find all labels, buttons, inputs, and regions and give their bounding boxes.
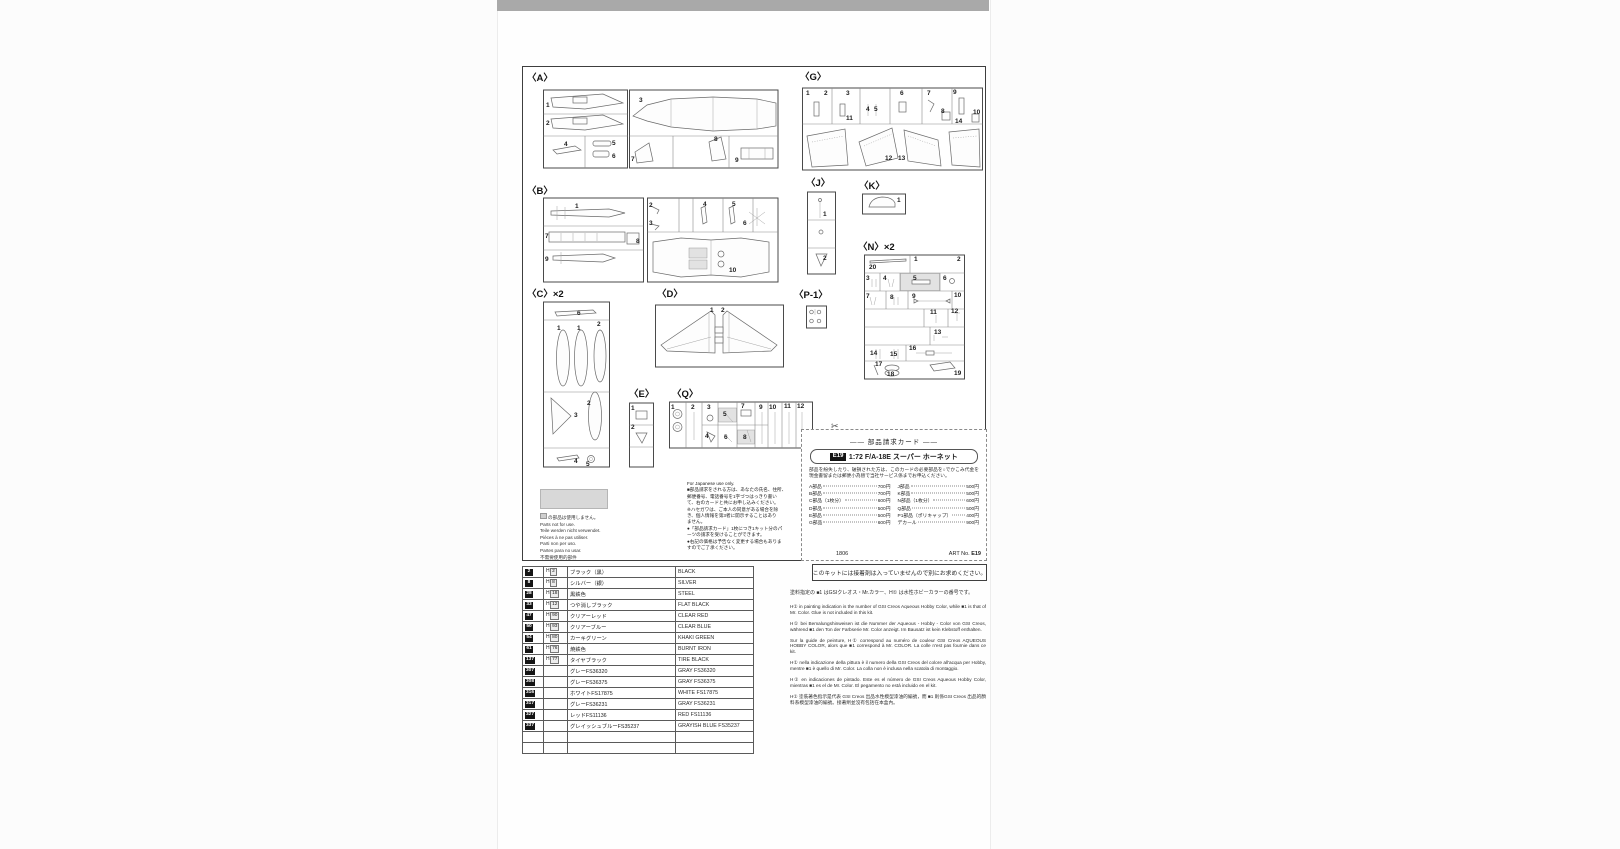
part-number: 19: [954, 370, 962, 377]
price-row: A部品700円 J部品500円: [809, 483, 979, 490]
sprue-k-diagram: 1: [862, 192, 907, 216]
part-number: 2: [587, 400, 591, 407]
mr-color-code: 316: [525, 690, 535, 697]
part-number: 4: [703, 201, 707, 208]
color-name-en: CLEAR RED: [676, 611, 754, 622]
sprue-n-diagram: 20 1 2 3 4 5 6 7 8 9 10 11 12 13 14 15 1…: [864, 253, 966, 381]
part-number: 2: [649, 202, 653, 209]
aqueous-color-code: H2: [546, 568, 557, 574]
part-number: 2: [721, 307, 725, 314]
mr-color-code: 54: [525, 635, 533, 642]
part-number: 5: [612, 140, 616, 147]
part-number: 8: [941, 108, 945, 115]
part-number: 13: [934, 329, 942, 336]
part-number: 18: [887, 371, 895, 378]
part-number: 9: [735, 157, 739, 164]
part-number: 3: [574, 412, 578, 419]
sprue-label-k: 〈K〉: [859, 178, 885, 192]
color-name-jp: グレーFS36231: [568, 699, 676, 710]
paint-note-paragraph: H① in painting indication is the number …: [790, 604, 986, 616]
not-for-use-line: Parts not for use.: [540, 522, 622, 529]
part-number: 3: [649, 220, 653, 227]
part-number: 12: [797, 403, 805, 410]
price-row: G部品600円 デカール900円: [809, 519, 979, 526]
mr-color-code: 307: [525, 668, 535, 675]
paint-table-row: 137 H77 タイヤブラック TIRE BLACK: [523, 655, 754, 666]
color-name-jp: レッドFS11136: [568, 710, 676, 721]
part-number: 1: [710, 307, 714, 314]
part-number: 9: [912, 293, 916, 300]
aqueous-color-code: H12: [546, 601, 559, 607]
part-number: 17: [875, 361, 883, 368]
part-number: 3: [639, 97, 643, 104]
part-number: 7: [741, 403, 745, 410]
print-code: 1806: [836, 551, 848, 557]
part-number: 2: [546, 120, 550, 127]
part-number: 3: [846, 90, 850, 97]
part-number: 5: [732, 201, 736, 208]
paint-table-row: 54 H80 カーキグリーン KHAKI GREEN: [523, 633, 754, 644]
part-number: 12: [885, 155, 893, 162]
color-name-en: FLAT BLACK: [676, 600, 754, 611]
sprue-label-a: 〈A〉: [527, 70, 553, 84]
color-name-jp: ブラック（黒）: [568, 567, 676, 578]
part-number: 15: [890, 351, 898, 358]
aqueous-color-code: H93: [546, 623, 559, 629]
paint-table-row: 2 H2 ブラック（黒） BLACK: [523, 567, 754, 578]
part-number: 6: [900, 90, 904, 97]
part-number: 6: [577, 310, 581, 317]
mr-color-code: 308: [525, 679, 535, 686]
color-name-jp: カーキグリーン: [568, 633, 676, 644]
part-number: 2: [957, 256, 961, 263]
part-number: 4: [564, 141, 568, 148]
part-number: 2: [631, 424, 635, 431]
part-number: 6: [612, 153, 616, 160]
paint-table-row: 8 H8 シルバー（銀） SILVER: [523, 578, 754, 589]
kit-name: 1:72 F/A-18E スーパー ホーネット: [849, 452, 958, 462]
art-number: ART No. E19: [949, 551, 981, 557]
sprue-label-c: 〈C〉×2: [527, 286, 564, 300]
part-number: 14: [955, 118, 963, 125]
part-number: 5: [913, 275, 917, 282]
part-number: 1: [577, 325, 581, 332]
color-name-en: WHITE FS17875: [676, 688, 754, 699]
japanese-only-note: For Japanese use only.■部品請求をされる方は、あなたの氏名…: [687, 481, 794, 551]
aqueous-color-code: H18: [546, 590, 559, 596]
sprue-j-diagram: 1 2: [807, 190, 837, 275]
part-number: 4: [705, 433, 709, 440]
color-name-jp: シルバー（銀）: [568, 578, 676, 589]
scissors-icon: ✂: [831, 421, 839, 432]
part-number: 1: [897, 197, 901, 204]
part-number: 5: [723, 411, 727, 418]
parts-not-for-use: の部品は使用しません。 Parts not for use.Teile werd…: [540, 489, 622, 561]
note-line: すのでご了承ください。: [687, 545, 794, 551]
color-name-jp: [568, 732, 676, 743]
mr-color-code: 2: [525, 569, 533, 576]
part-number: 6: [724, 434, 728, 441]
part-number: 5: [586, 461, 590, 468]
part-number: 1: [806, 90, 810, 97]
paint-table-row: 337 グレイッシュブルーFS35237 GRAYISH BLUE FS3523…: [523, 721, 754, 732]
part-number: 7: [631, 156, 635, 163]
part-number: 8: [743, 434, 747, 441]
mr-color-code: 50: [525, 624, 533, 631]
part-number: 10: [973, 109, 981, 116]
not-for-use-line-jp: の部品は使用しません。: [540, 513, 622, 522]
color-name-en: GRAY FS36231: [676, 699, 754, 710]
kit-name-box: E19 1:72 F/A-18E スーパー ホーネット: [810, 449, 978, 464]
part-number: 3: [707, 404, 711, 411]
color-name-en: GRAYISH BLUE FS35237: [676, 721, 754, 732]
part-number: 1: [914, 256, 918, 263]
paint-table-row: 50 H93 クリアーブルー CLEAR BLUE: [523, 622, 754, 633]
paint-notes: 塗料指定の ■1 はGSIクレオス・Mr.カラー、H① は水性ホビーカラーの番号…: [790, 591, 986, 711]
aqueous-color-code: H90: [546, 612, 559, 618]
part-number: 14: [870, 350, 878, 357]
sprue-c-diagram: 6 1 1 2 2 3 4 5: [543, 300, 613, 470]
color-name-jp: グレーFS36320: [568, 666, 676, 677]
color-name-jp: グレイッシュブルーFS35237: [568, 721, 676, 732]
color-name-en: [676, 732, 754, 743]
mr-color-code: 317: [525, 701, 535, 708]
sprue-label-e: 〈E〉: [629, 386, 654, 400]
part-number: 2: [597, 321, 601, 328]
part-number: 11: [930, 309, 937, 316]
paint-color-table: 2 H2 ブラック（黒） BLACK 8 H8 シルバー（銀） SILVER 2…: [522, 566, 754, 754]
part-number: 7: [866, 293, 870, 300]
color-name-jp: ホワイトFS17875: [568, 688, 676, 699]
color-name-jp: 黒鉄色: [568, 589, 676, 600]
part-number: 6: [743, 220, 747, 227]
paint-note-paragraph: H① 塗裝著色指示是代表 GSI Creos 出品水性模型漆油的編號，而 ■1 …: [790, 694, 986, 706]
paint-note-paragraph: H① bei Bemalungshinweisen ist die Nummer…: [790, 621, 986, 633]
not-for-use-line: Parti non per uso.: [540, 541, 622, 548]
part-number: 7: [545, 233, 549, 240]
paint-table-body: 2 H2 ブラック（黒） BLACK 8 H8 シルバー（銀） SILVER 2…: [523, 567, 754, 754]
note-line: ■部品請求をされる方は、あなたの氏名、住所、: [687, 487, 794, 493]
color-name-jp: クリアーブルー: [568, 622, 676, 633]
color-name-en: GRAY FS36320: [676, 666, 754, 677]
part-number: 4: [574, 458, 578, 465]
color-name-jp: つや消しブラック: [568, 600, 676, 611]
part-number: 13: [898, 155, 906, 162]
mr-color-code: 33: [525, 602, 533, 609]
sprue-g-diagram: 1 2 3 4 5 6 7 8 9 10 11 12 13 14: [802, 86, 984, 172]
part-number: 11: [784, 403, 791, 410]
part-number: 10: [769, 404, 777, 411]
price-row: E部品500円 P1部品（ポリキャップ）400円: [809, 512, 979, 519]
sprue-label-j: 〈J〉: [806, 175, 830, 189]
aqueous-color-code: H77: [546, 656, 559, 662]
sprue-p1-diagram: [806, 304, 830, 330]
paint-note-paragraph: Sur la guide de peinture, H① correspond …: [790, 638, 986, 656]
parts-request-card: ―― 部品請求カード ―― E19 1:72 F/A-18E スーパー ホーネッ…: [801, 429, 987, 561]
part-number: 9: [545, 256, 549, 263]
color-name-en: BURNT IRON: [676, 644, 754, 655]
color-name-jp: クリアーレッド: [568, 611, 676, 622]
mr-color-code: 137: [525, 657, 535, 664]
sprue-d-diagram: 1 2: [655, 303, 785, 369]
price-row: C部品（1枚分）600円 N部品（1枚分）600円: [809, 497, 979, 504]
not-for-use-line: 不需要使用的部件: [540, 555, 622, 562]
sprue-label-q: 〈Q〉: [672, 386, 698, 400]
paint-table-row: [523, 743, 754, 754]
parts-card-instructions: 部品を紛失したり、破損された方は、このカードの必要部品を○でかこみ代金を現金書留…: [809, 467, 979, 479]
part-number: 2: [823, 255, 827, 262]
color-name-en: STEEL: [676, 589, 754, 600]
sprue-b-diagram: 1 2 3 4 5 6 7 8 9 10: [543, 196, 779, 284]
part-number: 16: [909, 345, 917, 352]
sprue-label-n: 〈N〉×2: [858, 239, 895, 253]
part-number: 10: [729, 267, 737, 274]
color-name-en: GRAY FS36375: [676, 677, 754, 688]
not-for-use-line: Pièces à ne pas utiliser.: [540, 535, 622, 542]
color-name-en: [676, 743, 754, 754]
part-number: 7: [927, 90, 931, 97]
part-number: 11: [846, 115, 853, 122]
part-number: 1: [557, 325, 561, 332]
note-line: て、右のカードと共にお申し込みください。: [687, 500, 794, 506]
sprue-a-diagram: 1 2 3 4 5 6 7 8 9: [543, 88, 779, 170]
part-number: 9: [953, 89, 957, 96]
price-row: D部品500円 Q部品500円: [809, 505, 979, 512]
price-row: B部品700円 K部品500円: [809, 490, 979, 497]
color-name-en: TIRE BLACK: [676, 655, 754, 666]
aqueous-color-code: H80: [546, 634, 559, 640]
part-number: 4: [883, 275, 887, 282]
color-name-en: RED FS11136: [676, 710, 754, 721]
mr-color-code: 61: [525, 646, 533, 653]
paint-note-paragraph: 塗料指定の ■1 はGSIクレオス・Mr.カラー、H① は水性ホビーカラーの番号…: [790, 591, 986, 597]
page-top-strip: [497, 0, 989, 11]
color-name-jp: タイヤブラック: [568, 655, 676, 666]
paint-note-paragraph: H① en indicaciones de pintado. Este es e…: [790, 677, 986, 689]
color-name-jp: 焼鉄色: [568, 644, 676, 655]
sprue-label-g: 〈G〉: [800, 69, 826, 83]
mr-color-code: 327: [525, 712, 535, 719]
sprue-label-p1: 〈P-1〉: [794, 287, 828, 301]
paint-table-row: 307 グレーFS36320 GRAY FS36320: [523, 666, 754, 677]
sprue-label-b: 〈B〉: [527, 183, 553, 197]
aqueous-color-code: H76: [546, 645, 559, 651]
part-number: 12: [951, 308, 959, 315]
part-number: 2: [824, 90, 828, 97]
paint-table-row: 47 H90 クリアーレッド CLEAR RED: [523, 611, 754, 622]
part-number: 6: [943, 275, 947, 282]
part-number: 3: [866, 275, 870, 282]
paint-table-row: 316 ホワイトFS17875 WHITE FS17875: [523, 688, 754, 699]
part-number: 1: [575, 203, 579, 210]
instruction-sheet: 〈A〉 〈B〉 〈C〉×2 〈D〉 〈E〉 〈Q〉 〈G〉 〈J〉 〈K〉 〈N…: [0, 0, 1620, 849]
parts-card-footer: 1806 ART No. E19: [836, 551, 981, 557]
aqueous-color-code: H8: [546, 579, 557, 585]
mr-color-code: 47: [525, 613, 533, 620]
mr-color-code: 8: [525, 580, 533, 587]
parts-price-list: A部品700円 J部品500円 B部品700円 K部品500円 C部品（1枚分）…: [809, 483, 979, 526]
not-for-use-line: Teile werden nicht verwendet.: [540, 528, 622, 535]
color-name-en: BLACK: [676, 567, 754, 578]
gray-part-icon: [540, 513, 547, 519]
part-number: 20: [869, 264, 877, 271]
part-number: 8: [636, 238, 640, 245]
paint-table-row: 327 レッドFS11136 RED FS11136: [523, 710, 754, 721]
color-name-en: SILVER: [676, 578, 754, 589]
part-number: 9: [759, 404, 763, 411]
parts-card-title: ―― 部品請求カード ――: [802, 436, 986, 446]
paint-table-row: 33 H12 つや消しブラック FLAT BLACK: [523, 600, 754, 611]
mr-color-code: 28: [525, 591, 533, 598]
part-number: 8: [714, 136, 718, 143]
paint-table-row: [523, 732, 754, 743]
paint-note-paragraph: H① nella indicazione della pittura è il …: [790, 660, 986, 672]
part-number: 4: [866, 106, 870, 113]
paint-table-row: 61 H76 焼鉄色 BURNT IRON: [523, 644, 754, 655]
paint-table-row: 28 H18 黒鉄色 STEEL: [523, 589, 754, 600]
not-for-use-line: Partes para no usar.: [540, 548, 622, 555]
color-name-en: KHAKI GREEN: [676, 633, 754, 644]
part-number: 1: [823, 211, 827, 218]
mr-color-code: 337: [525, 723, 535, 730]
part-number: 1: [631, 405, 635, 412]
part-number: 8: [890, 294, 894, 301]
sprue-label-d: 〈D〉: [657, 286, 683, 300]
part-number: 10: [954, 292, 962, 299]
part-number: 1: [546, 102, 550, 109]
part-number: 5: [874, 106, 878, 113]
color-name-en: CLEAR BLUE: [676, 622, 754, 633]
kit-code-badge: E19: [830, 453, 846, 461]
glue-note-box: このキットには接着剤は入っていませんので別にお求めください。: [812, 564, 987, 581]
paint-table-row: 317 グレーFS36231 GRAY FS36231: [523, 699, 754, 710]
gray-swatch: [540, 489, 608, 509]
paint-table-row: 308 グレーFS36375 GRAY FS36375: [523, 677, 754, 688]
part-number: 2: [691, 404, 695, 411]
color-name-jp: グレーFS36375: [568, 677, 676, 688]
color-name-jp: [568, 743, 676, 754]
part-number: 1: [671, 404, 675, 411]
sprue-e-diagram: 1 2: [629, 401, 655, 469]
sprue-q-diagram: 1 2 3 4 5 6 7 8 9 10 11 12: [669, 400, 814, 450]
